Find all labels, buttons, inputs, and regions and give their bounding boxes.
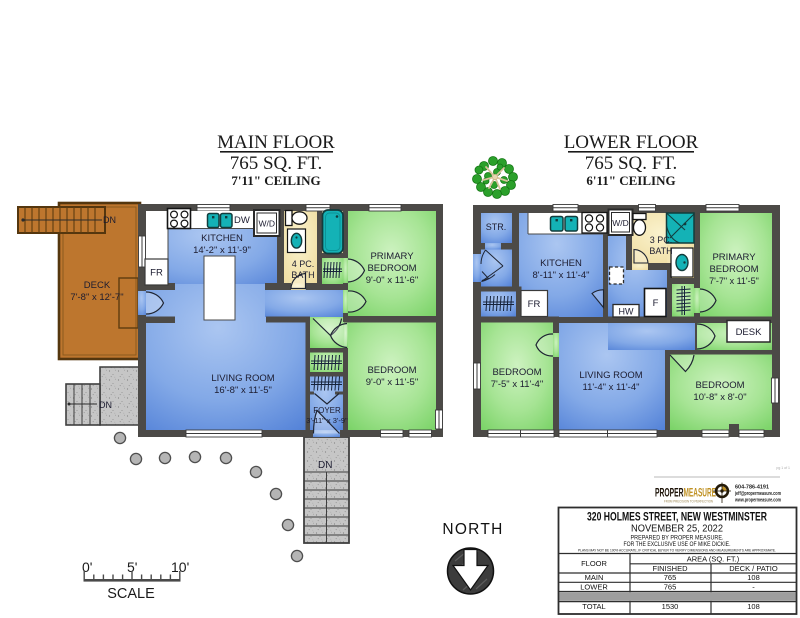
svg-text:pg 1 of 1: pg 1 of 1 [776, 466, 790, 470]
svg-text:9'-0" x 11'-6": 9'-0" x 11'-6" [366, 275, 418, 286]
svg-text:STR.: STR. [486, 222, 507, 232]
svg-text:FINISHED: FINISHED [652, 564, 688, 573]
svg-text:DN: DN [99, 400, 112, 410]
svg-text:FOYER: FOYER [313, 406, 341, 415]
svg-text:AREA (SQ. FT.): AREA (SQ. FT.) [687, 555, 740, 564]
svg-text:MEASURE: MEASURE [684, 486, 717, 500]
svg-text:10'-8" x 8'-0": 10'-8" x 8'-0" [693, 392, 746, 403]
svg-text:FR: FR [528, 299, 541, 310]
svg-text:BEDROOM: BEDROOM [695, 380, 744, 391]
svg-text:3'-11" x 3'-9": 3'-11" x 3'-9" [306, 416, 348, 425]
svg-text:3 PC.: 3 PC. [650, 235, 673, 245]
svg-text:DECK / PATIO: DECK / PATIO [729, 564, 778, 573]
svg-text:108: 108 [747, 573, 760, 582]
svg-text:LIVING ROOM: LIVING ROOM [579, 370, 642, 381]
svg-text:7'11" CEILING: 7'11" CEILING [231, 173, 320, 188]
svg-text:108: 108 [747, 602, 760, 611]
svg-text:DN: DN [103, 215, 116, 225]
svg-text:MAIN: MAIN [585, 573, 604, 582]
svg-text:TOTAL: TOTAL [582, 602, 605, 611]
svg-text:PLANS MAY NOT BE 100% ACCURATE: PLANS MAY NOT BE 100% ACCURATE, IF CRITI… [578, 548, 776, 553]
svg-text:HW: HW [619, 307, 634, 317]
svg-text:7'-7" x 11'-5": 7'-7" x 11'-5" [709, 276, 759, 286]
svg-text:LIVING ROOM: LIVING ROOM [211, 373, 274, 384]
svg-text:11'-4" x 11'-4": 11'-4" x 11'-4" [582, 382, 639, 393]
svg-text:FR: FR [150, 268, 163, 279]
svg-text:8'-11" x 11'-4": 8'-11" x 11'-4" [532, 270, 589, 281]
svg-text:BEDROOM: BEDROOM [709, 264, 758, 275]
svg-text:BATH: BATH [649, 246, 672, 256]
svg-text:7'-5" x 11'-4": 7'-5" x 11'-4" [491, 379, 543, 390]
svg-text:1530: 1530 [662, 602, 679, 611]
svg-text:14'-2" x 11'-9": 14'-2" x 11'-9" [193, 245, 251, 256]
svg-text:PRIMARY: PRIMARY [712, 252, 756, 263]
svg-text:765: 765 [664, 583, 677, 592]
svg-text:765: 765 [664, 573, 677, 582]
svg-text:16'-8" x 11'-5": 16'-8" x 11'-5" [214, 385, 272, 396]
svg-text:765 SQ. FT.: 765 SQ. FT. [230, 153, 323, 174]
svg-text:KITCHEN: KITCHEN [540, 258, 582, 269]
svg-text:DECK: DECK [84, 280, 111, 291]
svg-text:KITCHEN: KITCHEN [201, 233, 243, 244]
svg-text:6'11" CEILING: 6'11" CEILING [586, 173, 675, 188]
svg-text:www.propermeasure.com: www.propermeasure.com [734, 498, 781, 504]
svg-text:DW: DW [234, 215, 250, 226]
svg-text:PRIMARY: PRIMARY [370, 251, 414, 262]
svg-text:7'-8" x 12'-7": 7'-8" x 12'-7" [70, 292, 123, 303]
svg-text:W/D: W/D [612, 218, 629, 228]
svg-text:BEDROOM: BEDROOM [367, 365, 416, 376]
svg-text:F: F [653, 298, 659, 309]
svg-text:NOVEMBER 25, 2022: NOVEMBER 25, 2022 [631, 523, 723, 535]
svg-text:BEDROOM: BEDROOM [492, 367, 541, 378]
svg-text:PROPER: PROPER [655, 486, 684, 500]
svg-text:9'-0" x 11'-5": 9'-0" x 11'-5" [366, 377, 418, 388]
svg-text:BATH: BATH [291, 270, 314, 280]
svg-text:765 SQ. FT.: 765 SQ. FT. [585, 153, 678, 174]
svg-text:DESK: DESK [736, 327, 763, 338]
svg-text:BEDROOM: BEDROOM [367, 263, 416, 274]
svg-text:SCALE: SCALE [107, 586, 155, 602]
svg-text:4 PC.: 4 PC. [292, 259, 315, 269]
svg-text:W/D: W/D [259, 219, 276, 229]
svg-text:NORTH: NORTH [442, 521, 503, 538]
svg-text:DN: DN [318, 460, 332, 471]
svg-text:604-786-4191: 604-786-4191 [735, 485, 769, 491]
svg-text:FLOOR: FLOOR [581, 559, 607, 568]
svg-text:jeff@propermeasure.com: jeff@propermeasure.com [734, 491, 781, 497]
svg-text:FROM PRECISION TO PERFECTION: FROM PRECISION TO PERFECTION [664, 500, 713, 504]
svg-text:MAIN FLOOR: MAIN FLOOR [217, 132, 335, 153]
svg-text:LOWER: LOWER [580, 583, 608, 592]
svg-text:LOWER FLOOR: LOWER FLOOR [564, 132, 699, 153]
